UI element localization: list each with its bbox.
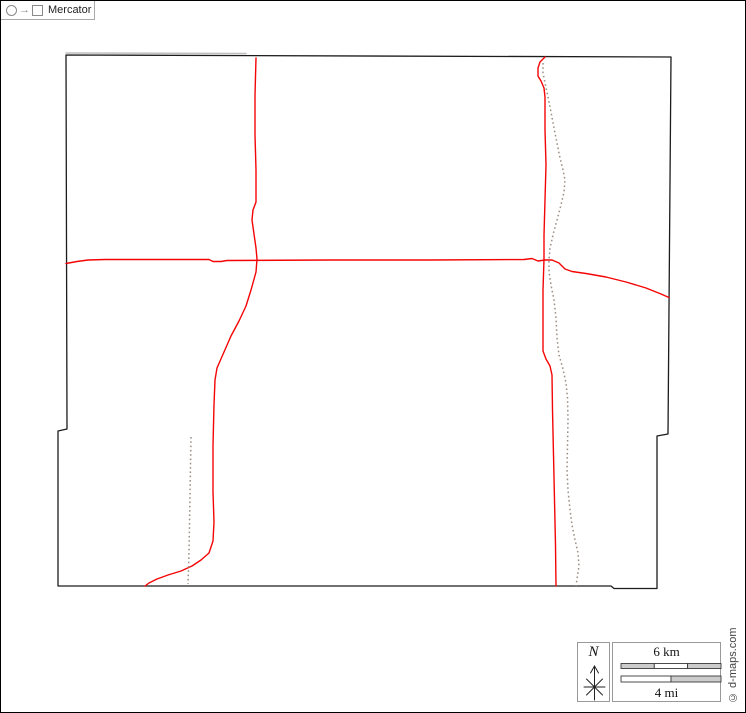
map-canvas — [0, 0, 746, 713]
road-east — [538, 57, 556, 586]
stream-west-dashed — [188, 437, 191, 584]
copyright-text: © d-maps.com — [727, 631, 739, 703]
scale-mi-label: 4 mi — [613, 685, 720, 701]
scale-bar-box: 6 km 4 mi — [612, 642, 721, 702]
road-horizontal — [66, 259, 669, 298]
north-arrow-icon — [578, 662, 611, 702]
map-page: N 6 km 4 mi → Mercator © d-maps.com — [0, 0, 746, 713]
stream-east-dashed — [543, 63, 579, 586]
neighbor-boundary-top — [66, 53, 246, 54]
north-indicator-box: N — [577, 642, 610, 702]
north-label: N — [578, 644, 609, 661]
county-outline — [58, 55, 671, 589]
road-west — [145, 58, 257, 586]
